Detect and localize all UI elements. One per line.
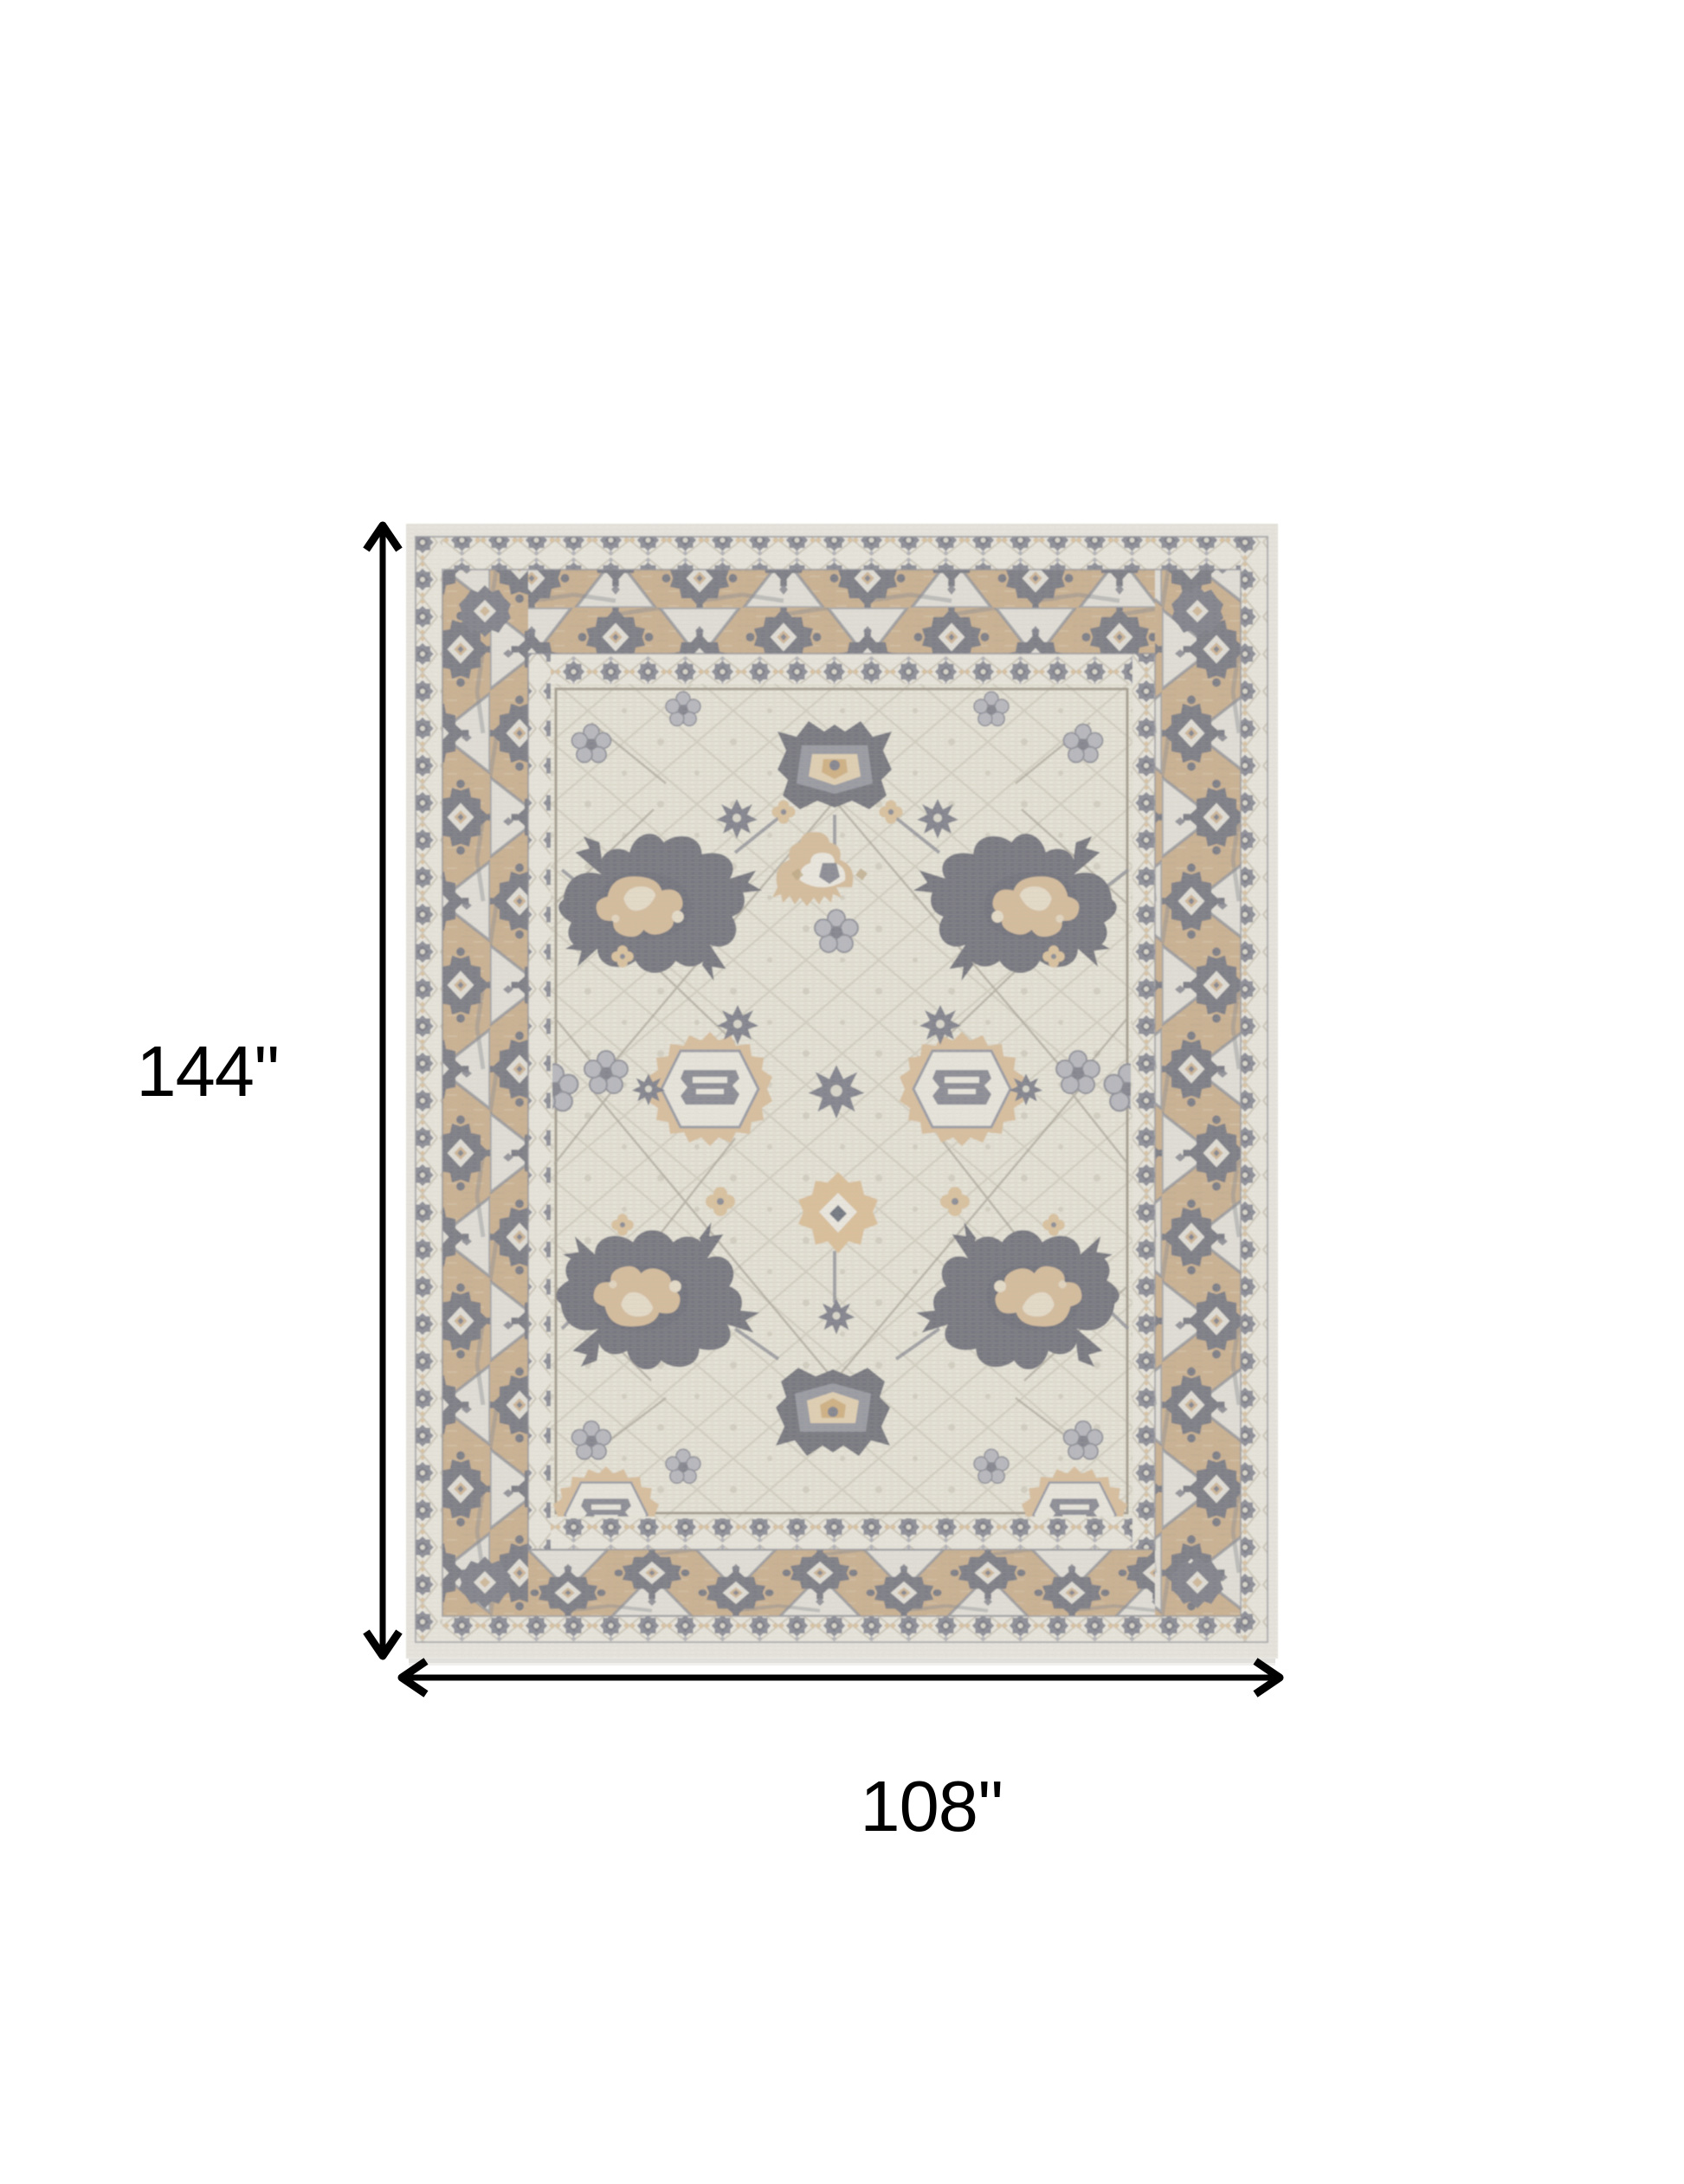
svg-text:144'': 144'' xyxy=(136,1031,279,1111)
svg-text:108'': 108'' xyxy=(860,1766,1003,1846)
